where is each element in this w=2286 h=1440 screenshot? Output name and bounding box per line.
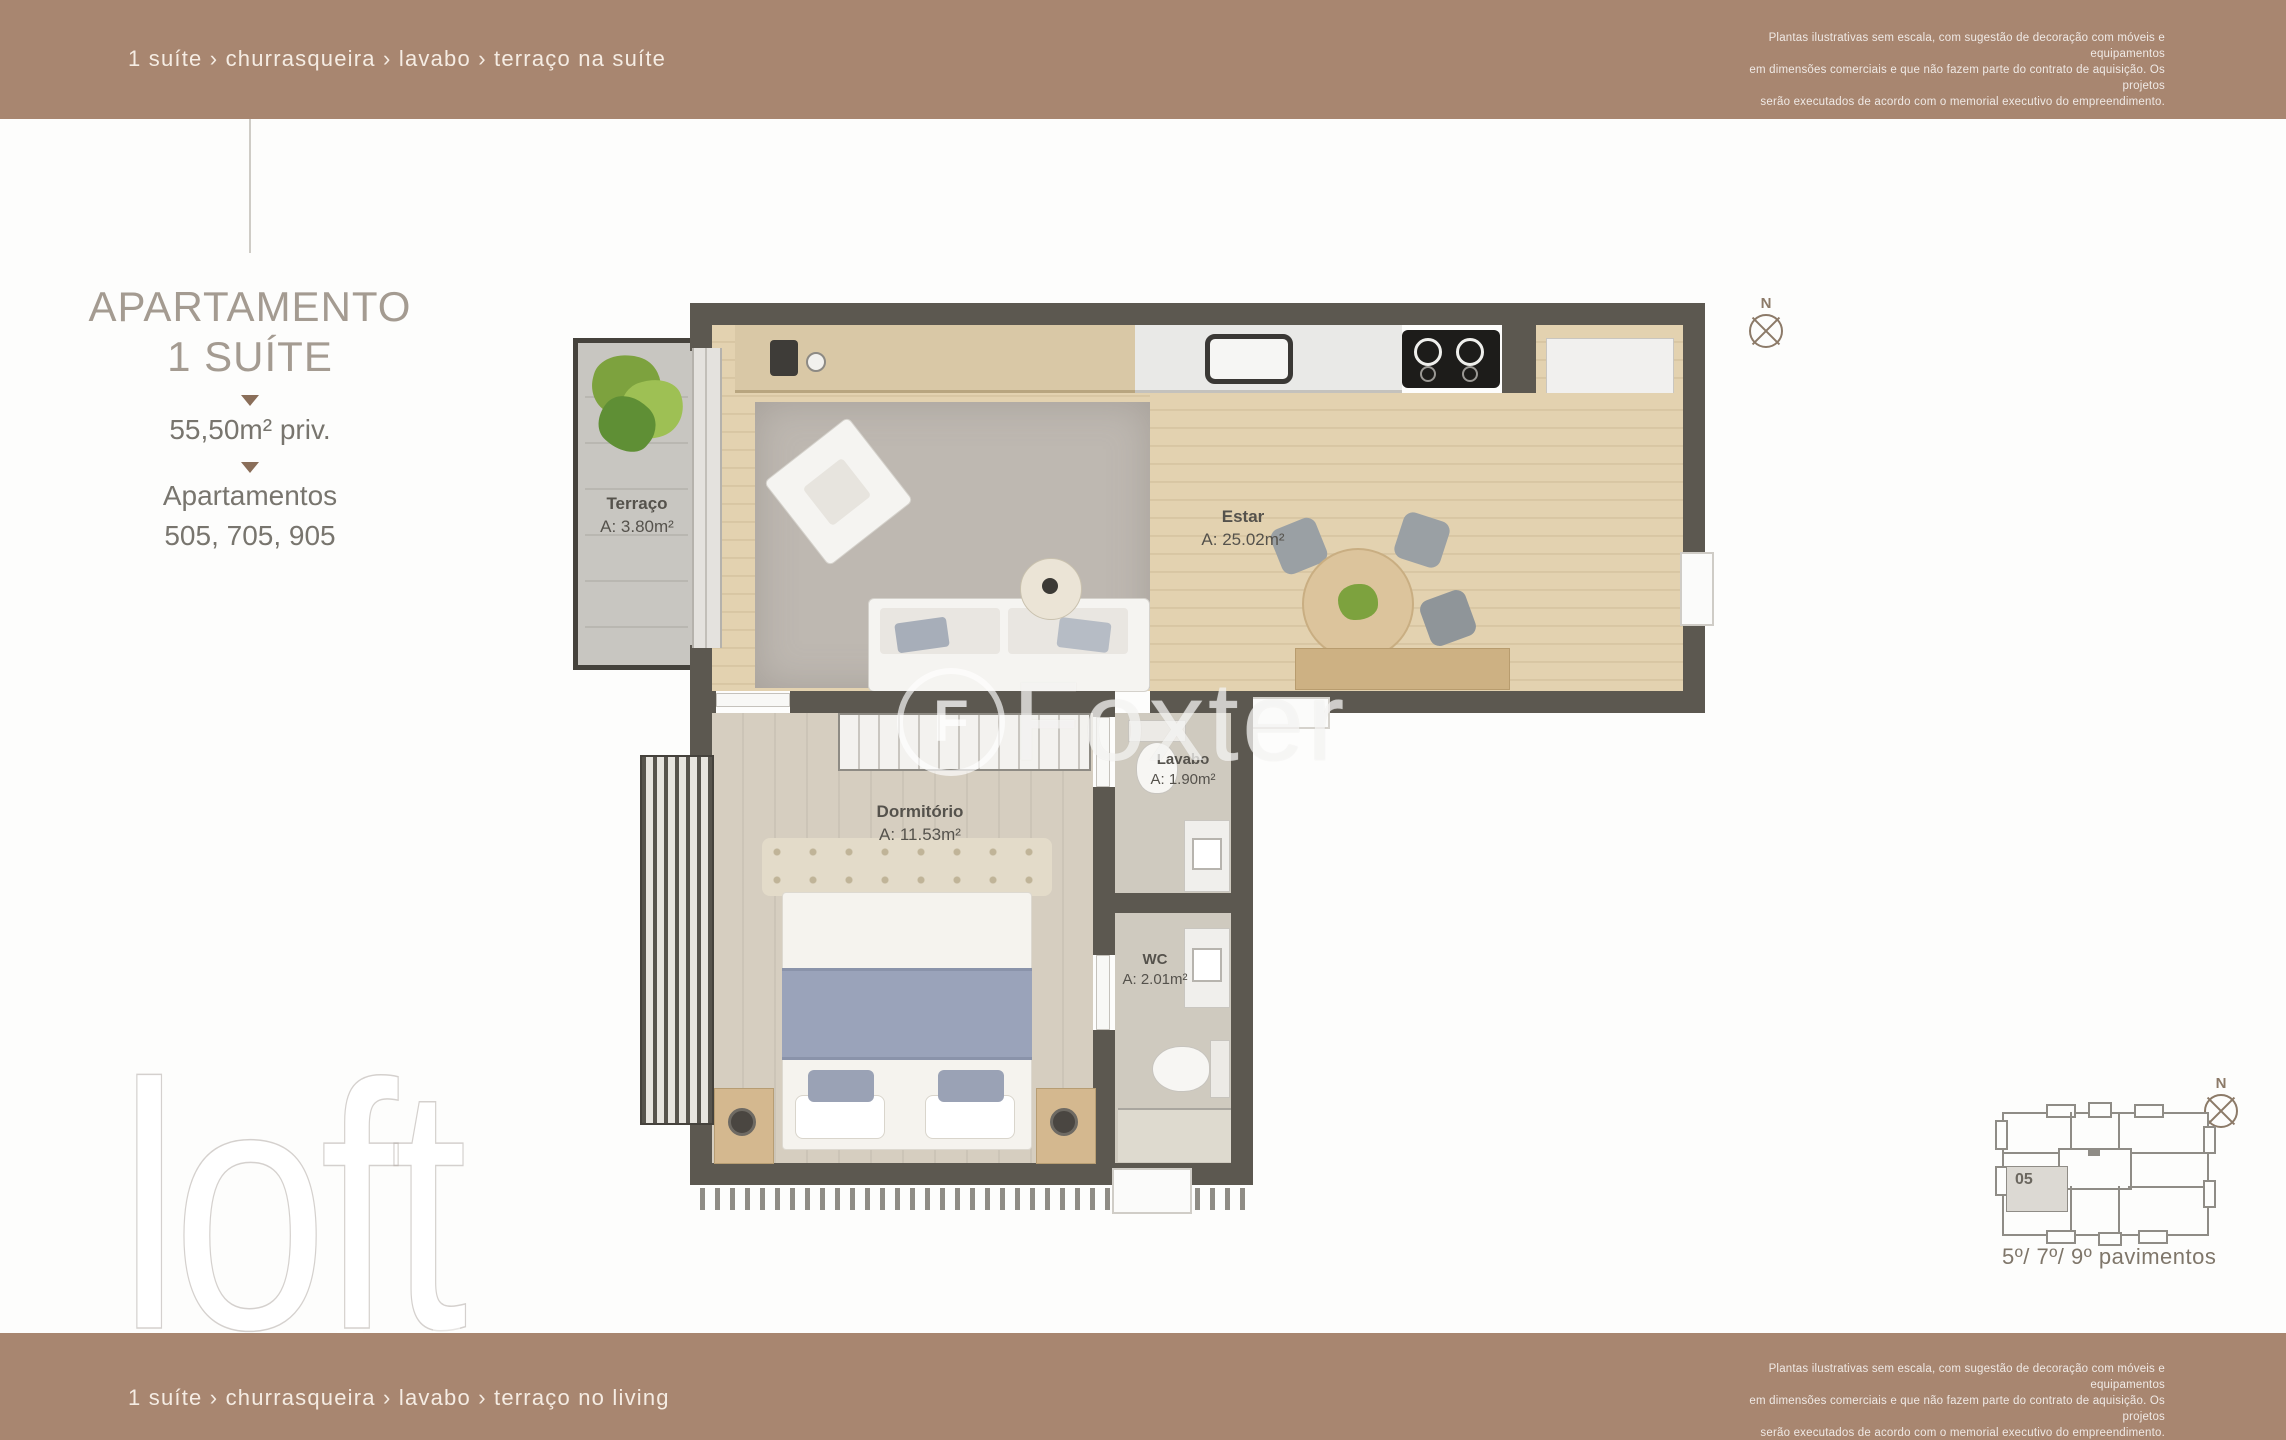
bed-accent-pillow: [808, 1070, 874, 1102]
cooktop-burner: [1462, 366, 1478, 382]
keyplan-inner-wall: [2118, 1186, 2120, 1232]
keyplan-balcony: [2203, 1126, 2216, 1154]
wall: [1683, 303, 1705, 713]
keyplan-balcony: [2134, 1104, 2164, 1118]
apartments-block: Apartamentos 505, 705, 905: [55, 476, 445, 556]
room-name: Dormitório: [805, 800, 1035, 823]
compass-rose-icon: [2204, 1094, 2238, 1128]
barbecue-counter: [1546, 338, 1674, 396]
keyplan-unit-05: 05: [2006, 1166, 2068, 1212]
apartment-title-line1: APARTAMENTO: [55, 282, 445, 332]
terrace-glass-door-line: [705, 348, 707, 648]
bottom-disclaimer-line1: Plantas ilustrativas sem escala, com sug…: [1745, 1361, 2165, 1393]
estar-window: [1680, 552, 1714, 626]
keyplan-inner-wall: [2128, 1186, 2205, 1188]
bottom-disclaimer: Plantas ilustrativas sem escala, com sug…: [1745, 1361, 2165, 1440]
room-area: A: 25.02m²: [1148, 528, 1338, 551]
bed-accent-pillow: [938, 1070, 1004, 1102]
bed-runner: [782, 968, 1032, 1060]
kitchen-appliance: [770, 340, 798, 376]
apartment-numbers: 505, 705, 905: [55, 516, 445, 556]
wall: [1115, 893, 1231, 913]
cooktop-burner: [1456, 338, 1484, 366]
room-label-terraco: Terraço A: 3.80m²: [575, 492, 699, 538]
triangle-marker-icon: [241, 462, 259, 473]
apartments-label: Apartamentos: [55, 476, 445, 516]
lavabo-sink: [1192, 838, 1222, 870]
room-label-estar: Estar A: 25.02m²: [1148, 505, 1338, 551]
toilet: [1152, 1046, 1210, 1092]
keyplan-core-notch: [2088, 1148, 2100, 1156]
apartment-title-line2: 1 SUÍTE: [55, 332, 445, 382]
keyplan-balcony: [2088, 1102, 2112, 1118]
cooktop-burner: [1414, 338, 1442, 366]
room-area: A: 2.01m²: [1105, 970, 1205, 990]
wall: [1093, 787, 1115, 955]
wall: [690, 303, 1705, 325]
keyplan-caption: 5º/ 7º/ 9º pavimentos: [2002, 1244, 2216, 1270]
room-name: Terraço: [575, 492, 699, 515]
loft-watermark: loft: [118, 1058, 460, 1358]
room-label-dormitorio: Dormitório A: 11.53m²: [805, 800, 1035, 846]
top-disclaimer-line1: Plantas ilustrativas sem escala, com sug…: [1745, 30, 2165, 62]
top-disclaimer-line3: serão executados de acordo com o memoria…: [1745, 94, 2165, 110]
room-area: A: 11.53m²: [805, 823, 1035, 846]
private-area-text: 55,50m² priv.: [55, 410, 445, 450]
lamp-icon: [728, 1108, 756, 1136]
foxter-logo-icon: F: [897, 668, 1005, 776]
bottom-disclaimer-line2: em dimensões comerciais e que não fazem …: [1745, 1393, 2165, 1425]
keyplan-balcony: [2138, 1230, 2168, 1244]
kitchen-appliance: [806, 352, 826, 372]
bedroom-door: [716, 693, 790, 707]
plan-compass: N: [1745, 296, 1787, 348]
cooktop-burner: [1420, 366, 1436, 382]
shower-area: [1118, 1108, 1231, 1162]
triangle-marker-icon: [241, 395, 259, 406]
wall: [690, 303, 712, 351]
side-table-decor: [1042, 578, 1058, 594]
top-disclaimer-line2: em dimensões comerciais e que não fazem …: [1745, 62, 2165, 94]
wall: [1093, 1030, 1115, 1185]
compass-north-label: N: [1745, 296, 1787, 311]
keyplan-inner-wall: [2002, 1152, 2060, 1154]
room-name: Estar: [1148, 505, 1338, 528]
room-area: A: 3.80m²: [575, 515, 699, 538]
table-plant-icon: [1338, 584, 1378, 620]
bed-headboard: [762, 838, 1052, 896]
keyplan-balcony: [2046, 1230, 2076, 1244]
room-label-wc: WC A: 2.01m²: [1105, 950, 1205, 990]
service-door-mat: [1112, 1168, 1192, 1214]
top-disclaimer: Plantas ilustrativas sem escala, com sug…: [1745, 30, 2165, 110]
keyplan-balcony: [1995, 1120, 2008, 1150]
top-feature-strip: 1 suíte › churrasqueira › lavabo › terra…: [128, 46, 666, 72]
sidebar-divider-line: [249, 119, 251, 253]
keyplan-inner-wall: [2070, 1186, 2072, 1232]
top-bar: 1 suíte › churrasqueira › lavabo › terra…: [0, 0, 2286, 119]
floorplan-page: 1 suíte › churrasqueira › lavabo › terra…: [0, 0, 2286, 1440]
keyplan-inner-wall: [2128, 1152, 2205, 1154]
foxter-watermark: Foxter: [1012, 672, 1347, 772]
bottom-bar: 1 suíte › churrasqueira › lavabo › terra…: [0, 1333, 2286, 1440]
louver-panel: [640, 755, 714, 1125]
compass-rose-icon: [1749, 314, 1783, 348]
apartment-title: APARTAMENTO 1 SUÍTE: [55, 282, 445, 382]
keyplan-balcony: [2203, 1180, 2216, 1208]
lamp-icon: [1050, 1108, 1078, 1136]
bottom-feature-strip: 1 suíte › churrasqueira › lavabo › terra…: [128, 1385, 670, 1411]
bottom-disclaimer-line3: serão executados de acordo com o memoria…: [1745, 1425, 2165, 1440]
room-name: WC: [1105, 950, 1205, 970]
compass-north-label: N: [2200, 1076, 2242, 1091]
toilet-tank: [1210, 1040, 1230, 1098]
kitchen-sink: [1205, 334, 1293, 384]
sofa-pillow: [1056, 617, 1111, 653]
